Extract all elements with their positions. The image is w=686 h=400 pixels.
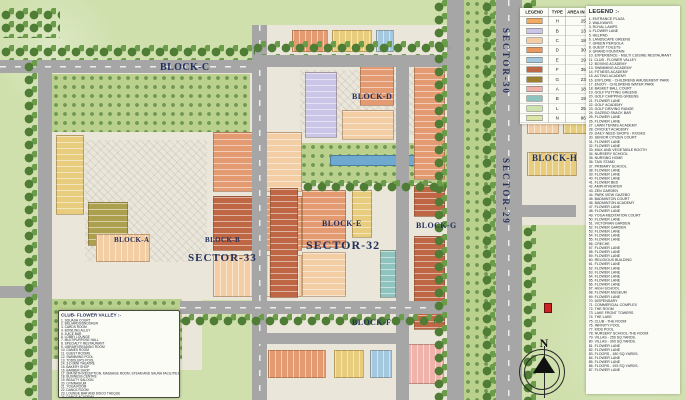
road-block-f (255, 333, 400, 344)
tree-row-mid-road (180, 314, 435, 327)
legend-color-swatch (526, 105, 542, 111)
legend-type-value: A (549, 84, 566, 93)
compass-needle-icon (533, 356, 555, 373)
legend-type-value: C (549, 36, 566, 45)
label-block-a: BLOCK-A (114, 236, 149, 244)
road-internal-west (38, 60, 52, 400)
block-e-plots-4 (352, 190, 372, 238)
legend-color-swatch (526, 47, 542, 53)
compass-rose: N (516, 338, 572, 396)
legend-color-swatch (526, 96, 542, 102)
legend-color-swatch (526, 76, 542, 82)
club-items: 1. SQUASH COURT2. BILLIARDS/SNOOKER3. CA… (61, 319, 178, 398)
central-park-pool (330, 155, 425, 166)
club-panel-title: CLUB- FLOWER VALLEY :- (61, 312, 178, 317)
legend-type-value: E (549, 55, 566, 64)
label-sector-32: SECTOR-32 (306, 238, 380, 253)
legend-color-swatch (526, 67, 542, 73)
legend-title: LEGEND :- (589, 8, 680, 15)
road-mid-horizontal (180, 301, 450, 314)
legend-table-header-type: TYPE (549, 8, 566, 16)
label-block-g: BLOCK-G (416, 221, 457, 230)
legend-type-value: H (549, 17, 566, 26)
label-block-d: BLOCK-D (352, 92, 392, 101)
legend-items: 1. ENTRANCE PLAZA2. WALKWAYS3. ROYAL LAM… (589, 17, 680, 372)
legend-table-header-legend: LEGEND (520, 8, 549, 16)
legend-type-value: B (549, 94, 566, 103)
legend-type-value: D (549, 46, 566, 55)
legend-color-swatch (526, 18, 542, 24)
site-master-plan: BLOCK-C BLOCK-D BLOCK-E BLOCK-G BLOCK-H … (0, 0, 686, 400)
block-f-plots-3 (370, 350, 392, 378)
tree-row-west-road (23, 60, 38, 400)
block-d-plots-2 (342, 110, 394, 140)
road-northwest (0, 60, 255, 73)
label-sector-33: SECTOR-33 (188, 252, 257, 264)
legend-color-swatch (526, 115, 542, 121)
legend-color-swatch (526, 28, 542, 34)
red-location-marker (544, 303, 552, 313)
block-a-plots-1 (56, 135, 84, 215)
road-internal-midright (396, 55, 409, 400)
label-block-b: BLOCK-B (205, 236, 240, 244)
block-e-plots-3 (302, 252, 346, 297)
club-flower-valley-panel: CLUB- FLOWER VALLEY :- 1. SQUASH COURT2.… (58, 310, 180, 398)
legend-color-swatch (526, 37, 542, 43)
legend-item: 87. FLOWER LANE (589, 368, 680, 372)
legend-type-value: G (549, 75, 566, 84)
golf-greens-northwest (52, 74, 250, 132)
label-block-e: BLOCK-E (322, 219, 362, 228)
legend-type-value: N (549, 113, 566, 122)
legend-type-value: F (549, 65, 566, 74)
legend-type-value: L (549, 104, 566, 113)
tree-cluster-northwest-corner (0, 8, 60, 38)
block-d-plots-1 (305, 72, 337, 138)
label-block-c: BLOCK-C (160, 62, 209, 73)
label-sector-29: SECTOR-29 (501, 158, 511, 278)
tree-row-internal-east (433, 0, 447, 400)
legend-color-swatch (526, 86, 542, 92)
legend-type-value: B (549, 26, 566, 35)
legend-list-panel: LEGEND :- 1. ENTRANCE PLAZA2. WALKWAYS3.… (586, 6, 680, 394)
road-block-h-access (516, 205, 576, 217)
block-f-plots-2 (334, 350, 364, 378)
tree-row-sector-road-west (481, 0, 496, 400)
label-block-f: BLOCK-F (352, 318, 391, 327)
block-e-plots-1 (270, 188, 298, 298)
tree-row-central-park (302, 180, 446, 192)
legend-color-swatch (526, 57, 542, 63)
tree-row-northwest-road (0, 45, 255, 60)
club-item: 24. DANCE ACADEMY (61, 395, 178, 398)
label-sector-30: SECTOR-30 (501, 28, 511, 123)
tree-row-north-central-road (252, 41, 450, 55)
label-block-h: BLOCK-H (532, 153, 577, 163)
block-f-plots-1 (268, 350, 326, 378)
block-c-plots-2 (262, 132, 302, 192)
block-g-plots-3 (380, 250, 396, 298)
road-north-central (252, 55, 452, 67)
